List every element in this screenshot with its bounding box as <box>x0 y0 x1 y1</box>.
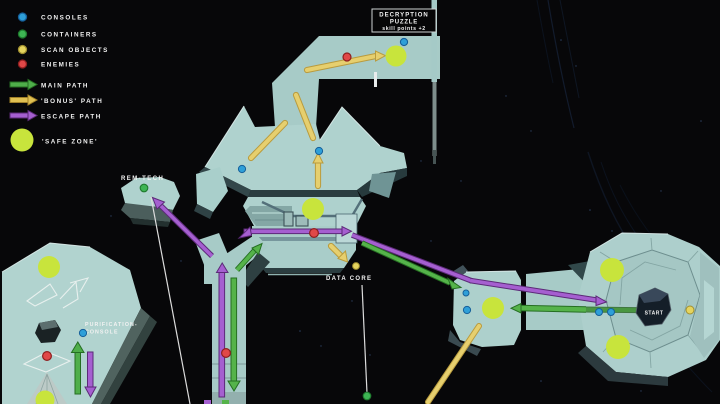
svg-text:DECRYPTION: DECRYPTION <box>379 13 429 19</box>
svg-text:DATA CORE: DATA CORE <box>326 276 372 282</box>
svg-text:CONSOLE: CONSOLE <box>85 330 119 336</box>
svg-text:MAIN PATH: MAIN PATH <box>41 83 89 90</box>
svg-text:skill points +2: skill points +2 <box>382 26 425 32</box>
svg-text:CONTAINERS: CONTAINERS <box>41 32 98 39</box>
svg-text:ESCAPE PATH: ESCAPE PATH <box>41 114 102 121</box>
svg-text:'SAFE ZONE': 'SAFE ZONE' <box>42 139 98 146</box>
svg-text:START: START <box>645 311 664 317</box>
svg-text:SCAN OBJECTS: SCAN OBJECTS <box>41 47 109 54</box>
svg-text:ENEMIES: ENEMIES <box>41 62 80 69</box>
svg-text:REM-TECH: REM-TECH <box>121 176 164 182</box>
svg-text:'BONUS' PATH: 'BONUS' PATH <box>41 98 103 105</box>
svg-text:PUZZLE: PUZZLE <box>390 20 418 26</box>
svg-text:PURIFICATION-: PURIFICATION- <box>85 322 138 328</box>
svg-text:CONSOLES: CONSOLES <box>41 15 89 22</box>
